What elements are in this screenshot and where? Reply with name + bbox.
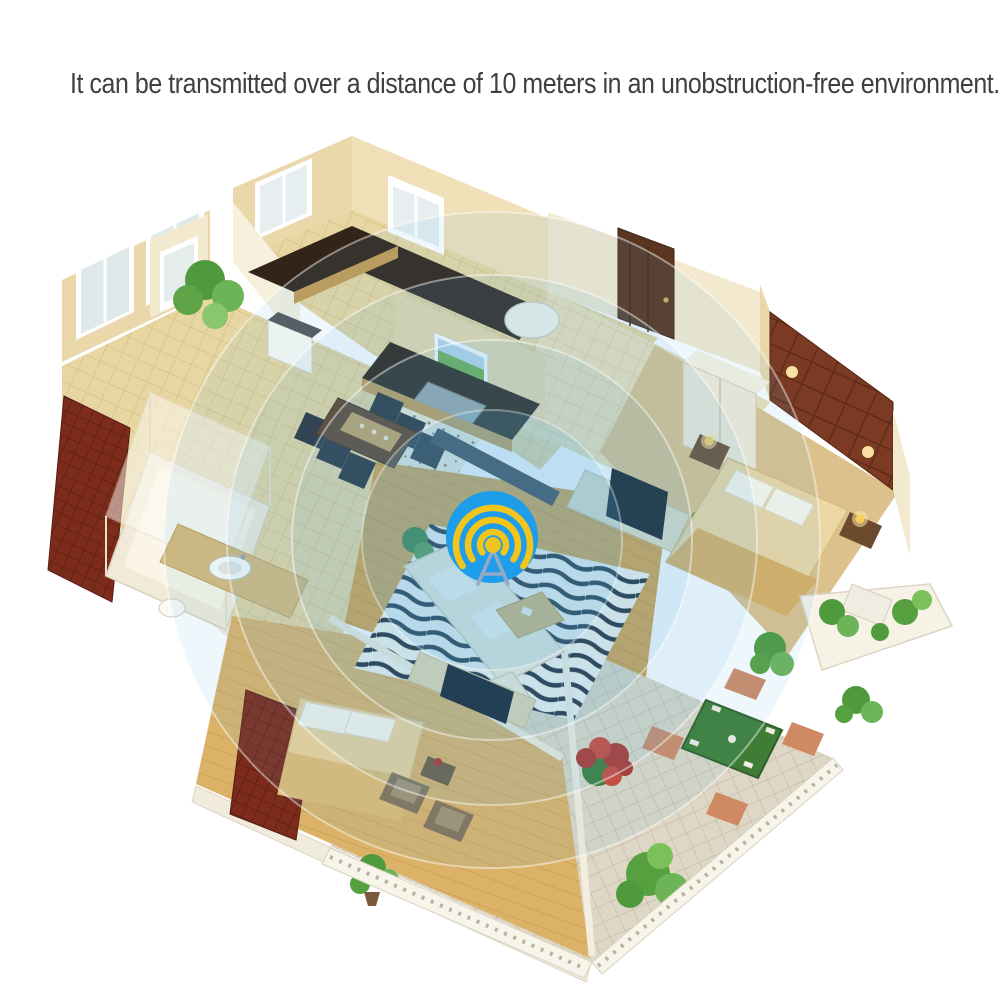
patio-plant — [835, 686, 883, 723]
wall-lamp — [862, 446, 874, 458]
wall-lamp — [786, 366, 798, 378]
antenna-ball — [485, 537, 501, 553]
caption-text: It can be transmitted over a distance of… — [70, 68, 930, 101]
lamp — [856, 515, 865, 524]
planter-box — [800, 584, 952, 670]
product-image: It can be transmitted over a distance of… — [0, 0, 1000, 1000]
floorplan-illustration — [0, 0, 1000, 1000]
